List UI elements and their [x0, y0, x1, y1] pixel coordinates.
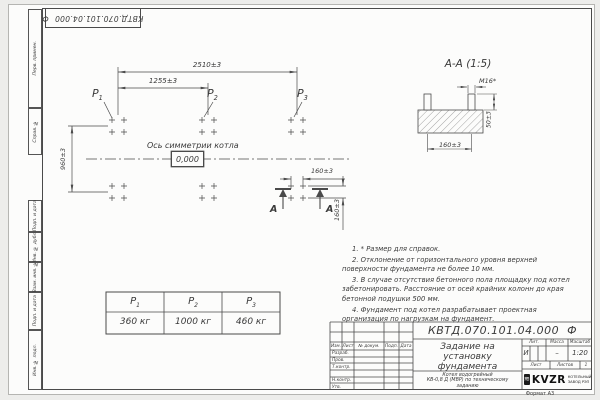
- tb-scale-value: 1:20: [568, 349, 592, 357]
- dim-bolt-h-label: 160±3: [300, 167, 344, 175]
- dim-depth-label: 960±3: [59, 143, 67, 175]
- title-block-doc-number: КВТД.070.101.04.000 Ф: [413, 324, 592, 337]
- load-label-p2: Р2: [207, 87, 218, 102]
- tb-row-prov: Пров.: [332, 358, 345, 363]
- load-label-p3: Р3: [297, 87, 308, 102]
- load-table-value-1: 360 кг: [106, 317, 164, 327]
- drawing-geometry: [0, 0, 600, 400]
- tb-row-nkontr: Н.контр.: [332, 378, 351, 383]
- dim-overall-label: 2510±3: [172, 61, 242, 69]
- dim-height-label: 50±3: [486, 104, 493, 136]
- note-4: 4. Фундамент под котел разрабатывает про…: [342, 306, 574, 325]
- title-block-subtitle: Котел водогрейный КВ-0,8 Д (МВР) по техн…: [413, 373, 522, 390]
- tb-sheets-label: Листов: [550, 363, 580, 368]
- tb-sheets-value: 1: [580, 363, 592, 368]
- load-leader-lines: [104, 102, 302, 118]
- tb-col-data: Дата: [399, 344, 413, 349]
- load-label-p1: Р1: [92, 87, 103, 102]
- kvzr-logo: ≋ KVZR КОТЕЛЬНЫЙ ЗАВОД РЭП: [524, 371, 590, 388]
- notes-block: 1. * Размер для справок. 2. Отклонение о…: [342, 245, 574, 326]
- load-table-header-3: Р3: [222, 296, 280, 309]
- tb-row-razrab: Разраб.: [332, 351, 349, 356]
- anchor-stud-right: [468, 94, 475, 110]
- load-table-value-3: 460 кг: [222, 317, 280, 327]
- kvzr-logo-icon: ≋: [524, 374, 530, 385]
- load-table-header-1: Р1: [106, 296, 164, 309]
- kvzr-logo-caption: КОТЕЛЬНЫЙ ЗАВОД РЭП: [568, 375, 592, 383]
- dim-half-label: 1255±3: [133, 77, 193, 85]
- anchor-stud-left: [424, 94, 431, 110]
- title-block-title: Задание на установку фундамента: [413, 342, 522, 372]
- section-letter-left: А: [270, 204, 277, 215]
- tb-mass-value: –: [546, 349, 568, 357]
- tb-sheet-label: Лист: [522, 363, 550, 368]
- tb-lit-label: Лит.: [522, 340, 546, 345]
- concrete-block: [418, 110, 483, 133]
- note-1: 1. * Размер для справок.: [342, 245, 574, 255]
- load-table-header-2: Р2: [164, 296, 222, 309]
- tb-col-list: Лист: [342, 344, 354, 349]
- note-2: 2. Отклонение от горизонтального уровня …: [342, 256, 574, 275]
- tb-lit-value: И: [522, 349, 530, 357]
- tb-col-podp: Подп.: [384, 344, 399, 349]
- drawing-sheet: Перв. примен. Справ. № Подп. и дата Инв.…: [0, 0, 600, 400]
- format-label: Формат А3: [500, 391, 580, 397]
- tb-row-utv: Утв.: [332, 385, 341, 390]
- dim-thread-label: М16*: [479, 77, 496, 85]
- load-table-value-2: 1000 кг: [164, 317, 222, 327]
- tb-scale-label: Масштаб: [568, 340, 592, 345]
- section-title: А-А (1:5): [428, 58, 508, 70]
- tb-mass-label: Масса: [546, 340, 568, 345]
- tb-row-tkontr: Т.контр.: [332, 365, 351, 370]
- symmetry-axis-label: Ось симметрии котла: [147, 141, 239, 150]
- dim-bolt-v-label: 160±3: [333, 194, 341, 226]
- dim-spacing-label: 160±3: [428, 141, 472, 149]
- note-3: 3. В случае отсутствия бетонного пола пл…: [342, 276, 574, 305]
- section-cut-arrows: [275, 189, 328, 209]
- tb-col-docnum: № докум.: [354, 344, 384, 349]
- kvzr-logo-text: KVZR: [532, 374, 566, 386]
- section-letter-right: А: [326, 204, 333, 215]
- level-mark: 0,000: [171, 151, 204, 167]
- tb-col-izm: Изм.: [330, 344, 342, 349]
